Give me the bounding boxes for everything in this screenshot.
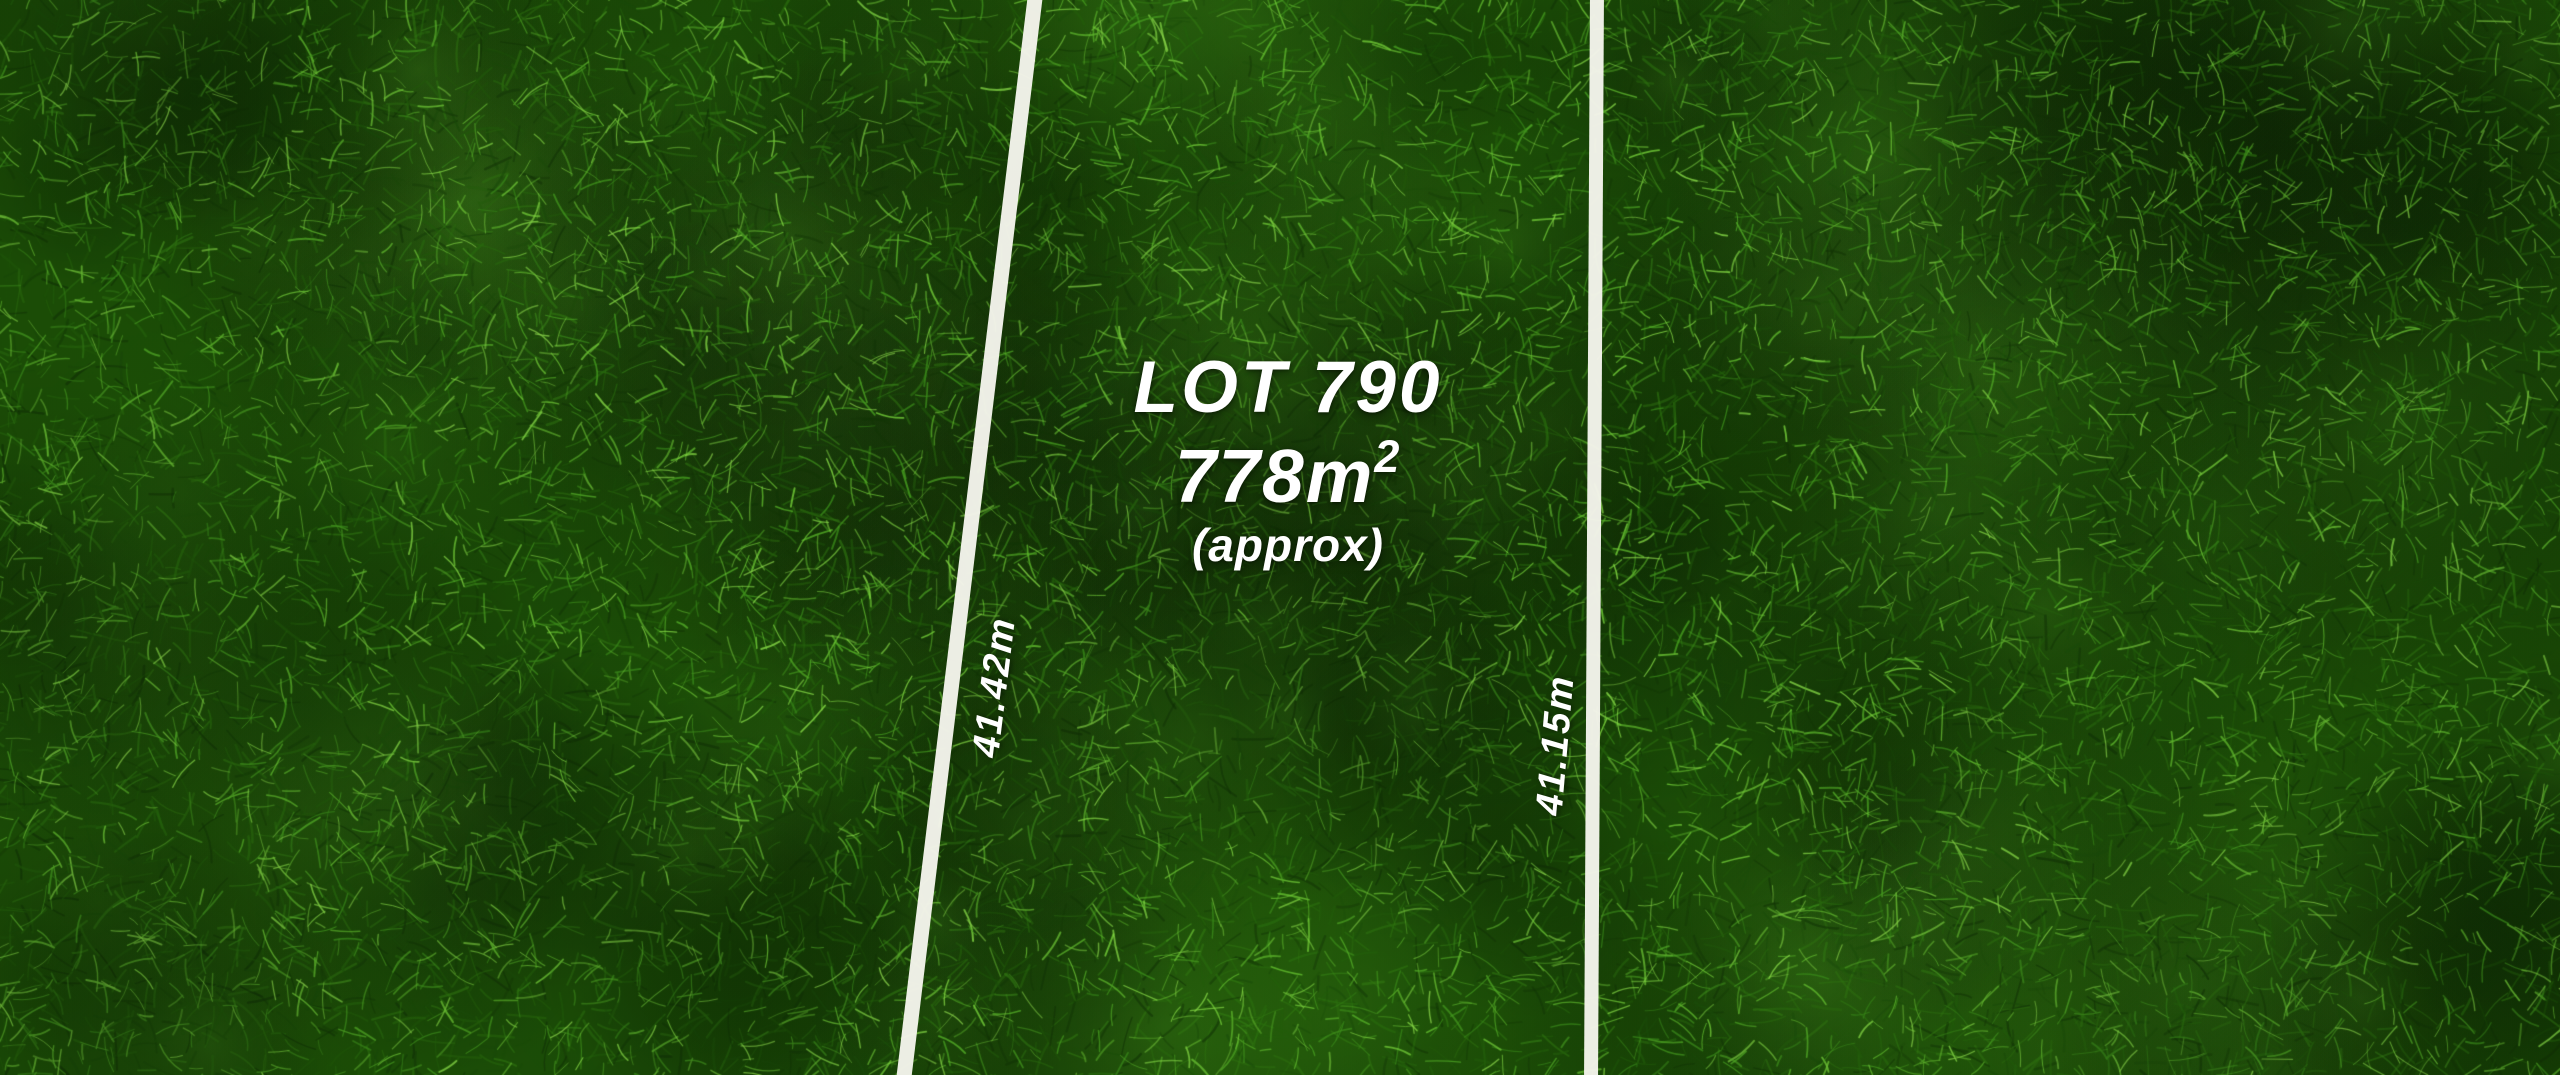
lot-label-block: LOT 790 778m2 (approx) [1133, 350, 1442, 568]
lot-area-label: 778m2 [1133, 439, 1442, 514]
lot-aerial-photo: LOT 790 778m2 (approx) 41.42m 41.15m [0, 0, 2560, 1075]
lot-area-value: 778m [1175, 434, 1375, 518]
lot-area-superscript: 2 [1374, 431, 1401, 482]
lot-area-approx-note: (approx) [1133, 522, 1442, 568]
lot-number-label: LOT 790 [1133, 350, 1442, 427]
